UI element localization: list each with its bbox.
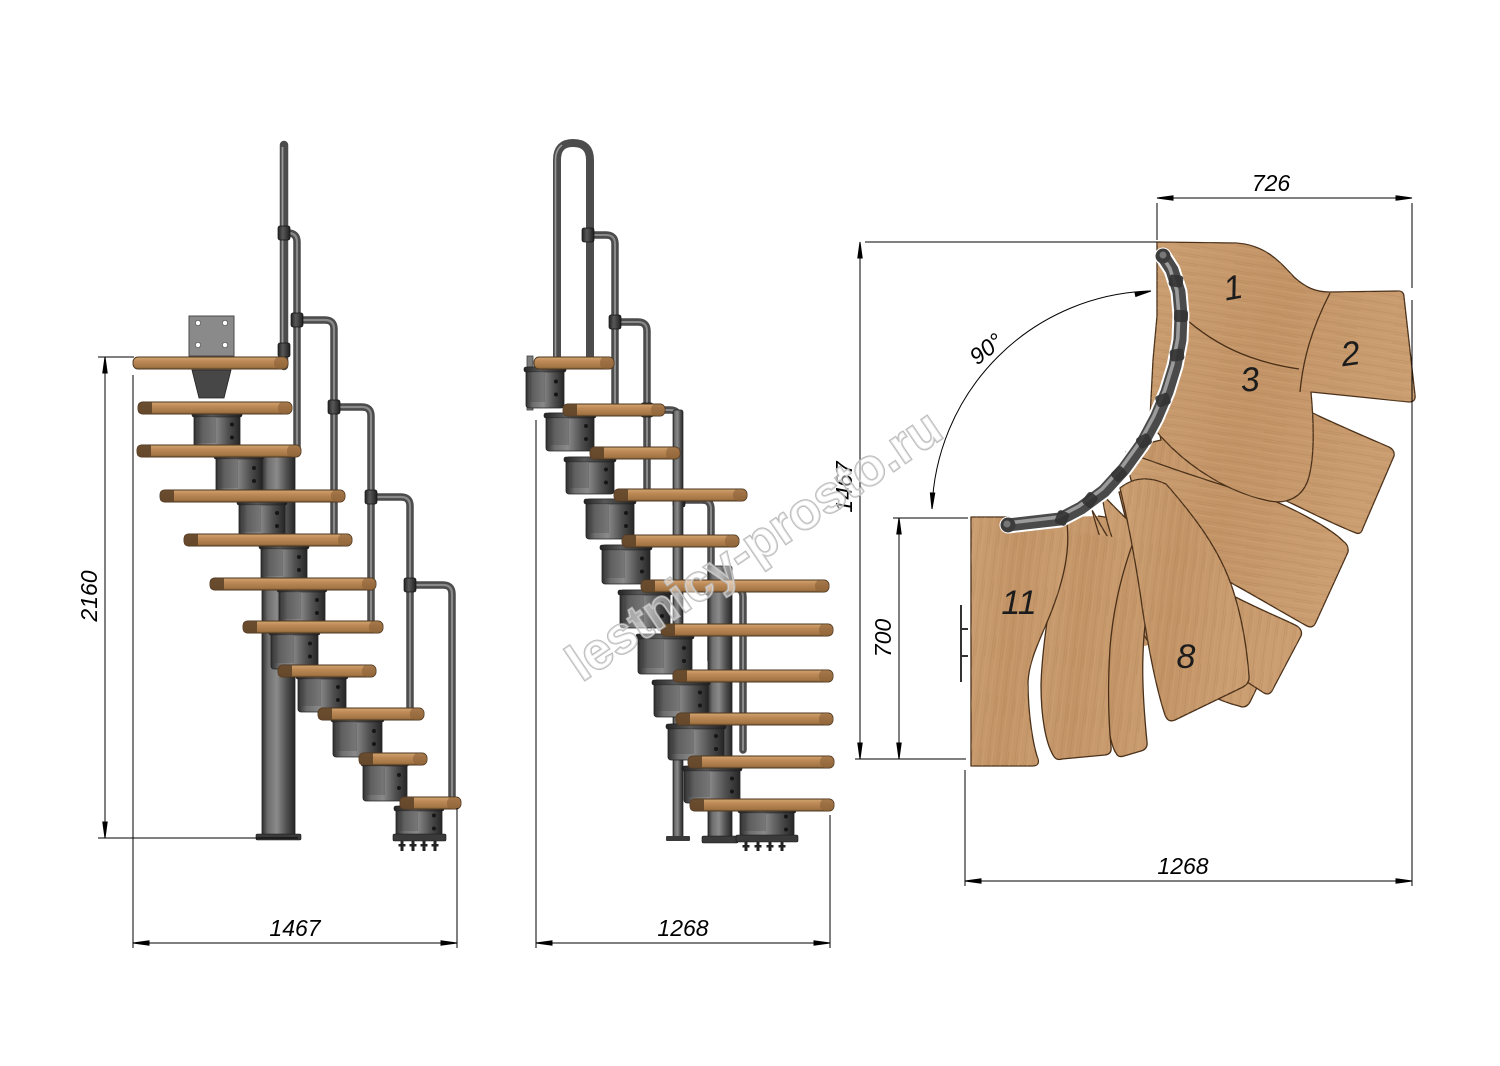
svg-text:90°: 90° bbox=[964, 328, 1007, 370]
svg-text:8: 8 bbox=[1177, 638, 1196, 676]
svg-text:1467: 1467 bbox=[269, 915, 321, 941]
svg-text:3: 3 bbox=[1238, 360, 1261, 400]
svg-text:726: 726 bbox=[1252, 170, 1291, 196]
svg-text:700: 700 bbox=[870, 619, 896, 658]
svg-text:2160: 2160 bbox=[76, 570, 102, 622]
svg-text:11: 11 bbox=[1001, 584, 1036, 622]
svg-text:1268: 1268 bbox=[657, 915, 708, 941]
svg-text:1268: 1268 bbox=[1157, 853, 1208, 879]
